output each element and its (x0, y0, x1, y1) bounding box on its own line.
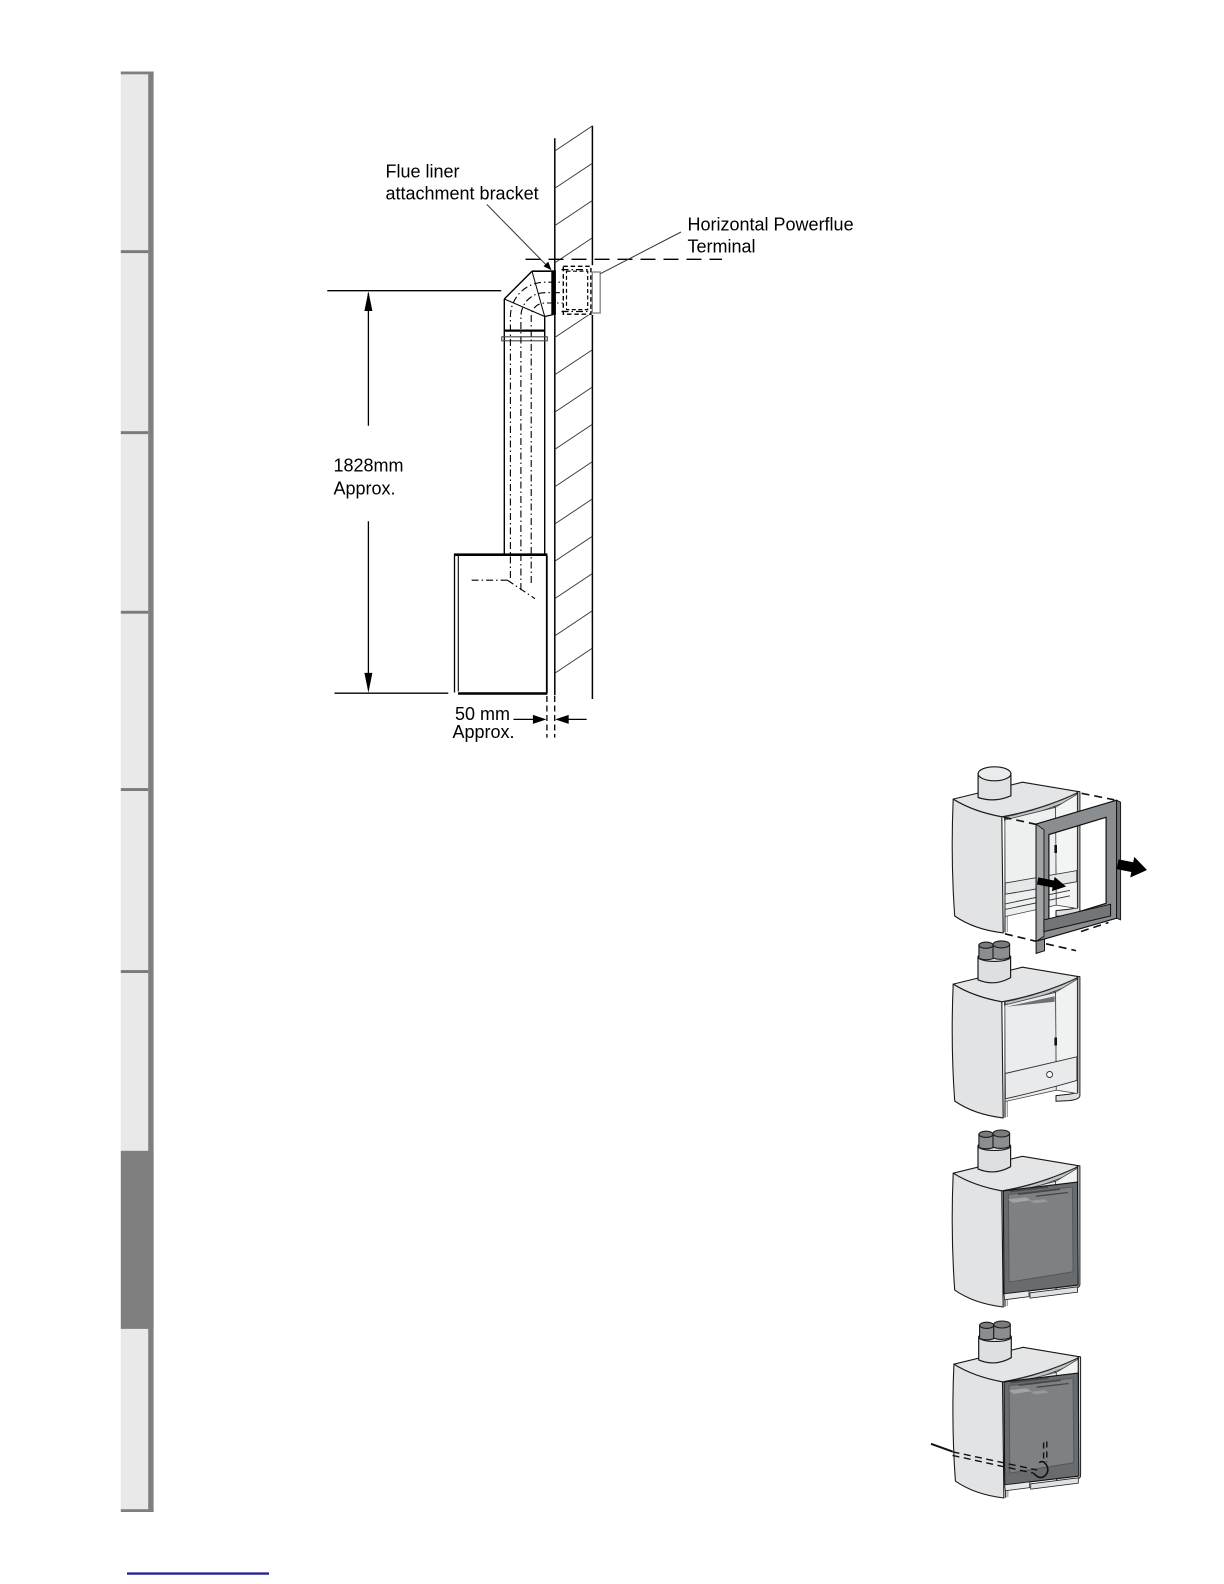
svg-text:Approx.: Approx. (453, 722, 515, 742)
svg-text:Approx.: Approx. (334, 479, 396, 499)
svg-text:1828mm: 1828mm (334, 456, 404, 476)
svg-text:attachment bracket: attachment bracket (386, 184, 539, 204)
svg-text:Horizontal Powerflue: Horizontal Powerflue (688, 215, 854, 235)
svg-text:Flue liner: Flue liner (386, 161, 460, 181)
svg-text:50 mm: 50 mm (455, 704, 510, 724)
svg-text:Terminal: Terminal (688, 236, 756, 256)
